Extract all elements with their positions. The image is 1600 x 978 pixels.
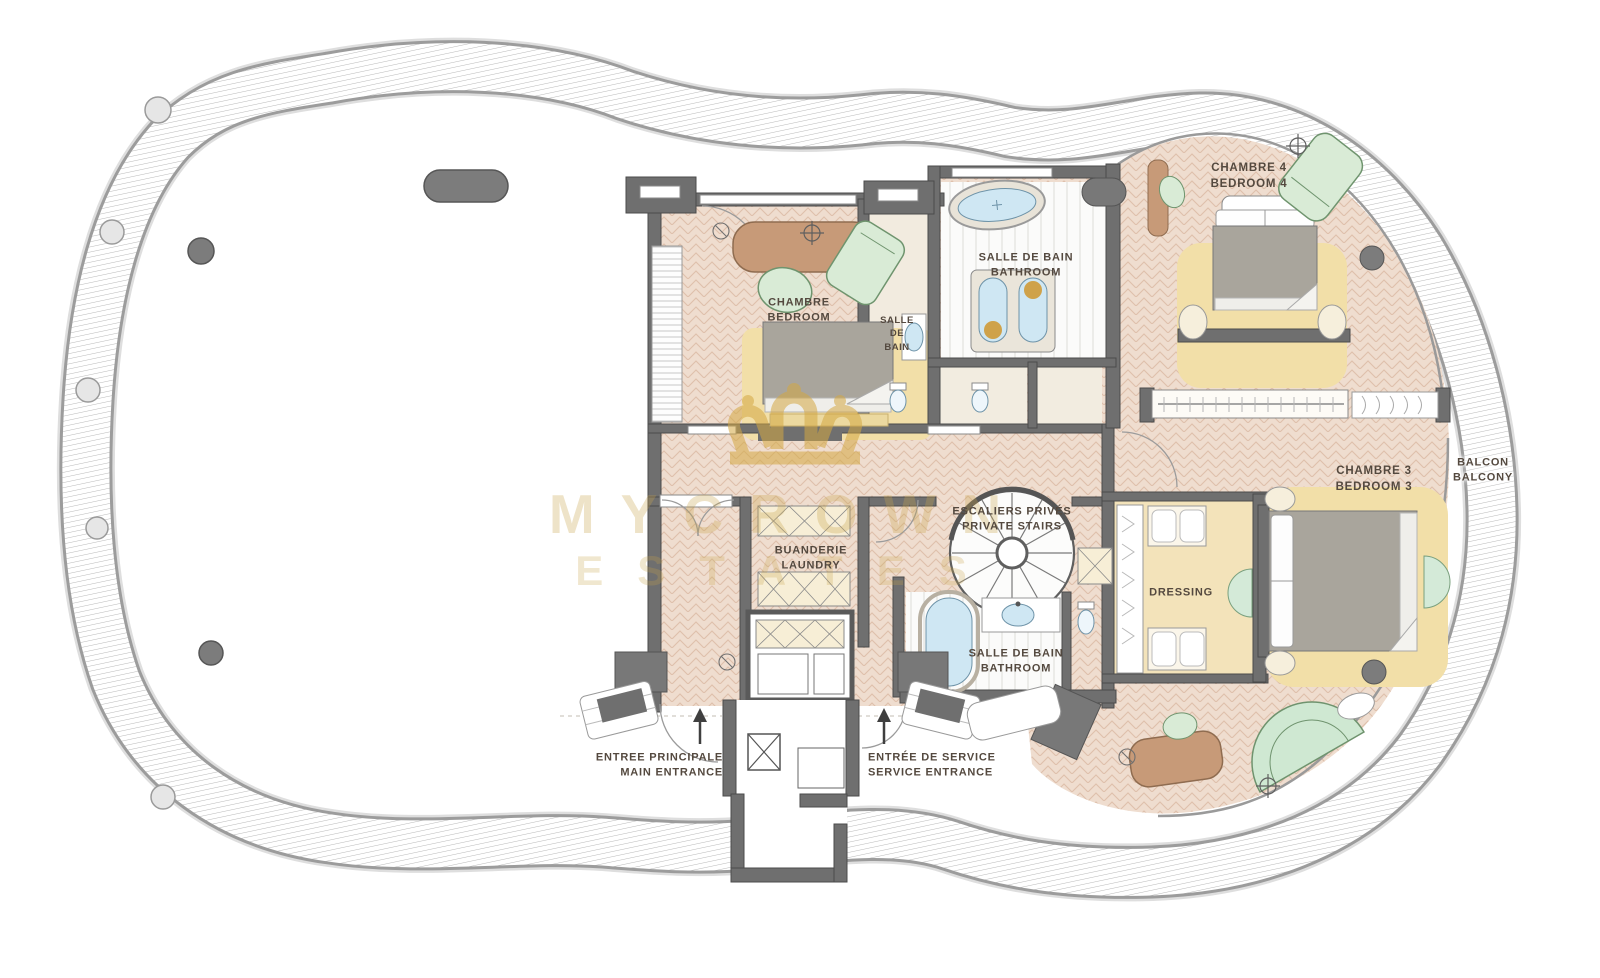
label-balcony: BALCON BALCONY (1453, 456, 1513, 487)
toilet (972, 383, 988, 412)
toilet (890, 383, 906, 412)
wc2-floor (1037, 367, 1102, 425)
label-stairs-fr: ESCALIERS PRIVÉS (952, 505, 1071, 520)
stool (1362, 660, 1386, 684)
label-bath-lower-fr: SALLE DE BAIN (969, 647, 1064, 662)
label-bedroom3: CHAMBRE 3 BEDROOM 3 (1336, 463, 1413, 495)
stool (1360, 246, 1384, 270)
label-bedroom4: CHAMBRE 4 BEDROOM 4 (1211, 160, 1288, 192)
main-entrance-arrow (693, 708, 707, 744)
label-bedroom4-fr: CHAMBRE 4 (1211, 160, 1288, 176)
side-table (1318, 305, 1346, 339)
label-bedroom2-en: BEDROOM (767, 311, 830, 326)
label-stairs-en: PRIVATE STAIRS (952, 520, 1071, 535)
label-bedroom2-fr: CHAMBRE (767, 296, 830, 311)
label-bath-small-l1: SALLE (880, 314, 914, 327)
floor-plan-page: MYCROWN ESTATES CHAMBRE BEDROOM SALLE DE… (0, 0, 1600, 978)
label-balcony-fr: BALCON (1453, 456, 1513, 471)
label-bedroom3-en: BEDROOM 3 (1336, 479, 1413, 495)
side-table (1265, 651, 1295, 675)
label-dressing-text: DRESSING (1149, 585, 1213, 600)
utility-shaft (748, 612, 852, 700)
elevator-core (723, 700, 859, 882)
label-bath-lower-en: BATHROOM (969, 662, 1064, 677)
toilet (1078, 602, 1094, 634)
label-laundry-en: LAUNDRY (775, 559, 848, 574)
label-bath-small-l2: DE (880, 327, 914, 340)
side-table (1179, 305, 1207, 339)
shelving (1117, 505, 1143, 673)
label-bath-main-en: BATHROOM (979, 266, 1074, 281)
label-entrance-main-en: MAIN ENTRANCE (596, 766, 723, 781)
label-entrance-service-en: SERVICE ENTRANCE (868, 766, 996, 781)
label-entrance-main-fr: ENTREE PRINCIPALE (596, 751, 723, 766)
label-bath-lower: SALLE DE BAIN BATHROOM (969, 647, 1064, 678)
label-bath-small: SALLE DE BAIN (880, 314, 914, 354)
side-table (1265, 487, 1295, 511)
label-bedroom4-en: BEDROOM 4 (1211, 176, 1288, 192)
label-bath-main-fr: SALLE DE BAIN (979, 251, 1074, 266)
label-entrance-service: ENTRÉE DE SERVICE SERVICE ENTRANCE (868, 751, 996, 782)
label-bath-small-l3: BAIN (880, 341, 914, 354)
wardrobe-strip (652, 246, 682, 422)
sink (1002, 604, 1034, 626)
bath-bench (1082, 178, 1126, 206)
balcony-door (1352, 392, 1438, 418)
label-entrance-service-fr: ENTRÉE DE SERVICE (868, 751, 996, 766)
label-entrance-main: ENTREE PRINCIPALE MAIN ENTRANCE (596, 751, 723, 782)
label-bath-main: SALLE DE BAIN BATHROOM (979, 251, 1074, 282)
double-vanity (971, 270, 1055, 352)
wardrobe (1152, 390, 1348, 418)
label-dressing: DRESSING (1149, 585, 1213, 600)
label-bedroom3-fr: CHAMBRE 3 (1336, 463, 1413, 479)
label-laundry-fr: BUANDERIE (775, 544, 848, 559)
terrace-planters (188, 170, 508, 665)
label-stairs: ESCALIERS PRIVÉS PRIVATE STAIRS (952, 505, 1071, 536)
label-laundry: BUANDERIE LAUNDRY (775, 544, 848, 575)
label-balcony-en: BALCONY (1453, 471, 1513, 486)
label-bedroom2: CHAMBRE BEDROOM (767, 296, 830, 327)
